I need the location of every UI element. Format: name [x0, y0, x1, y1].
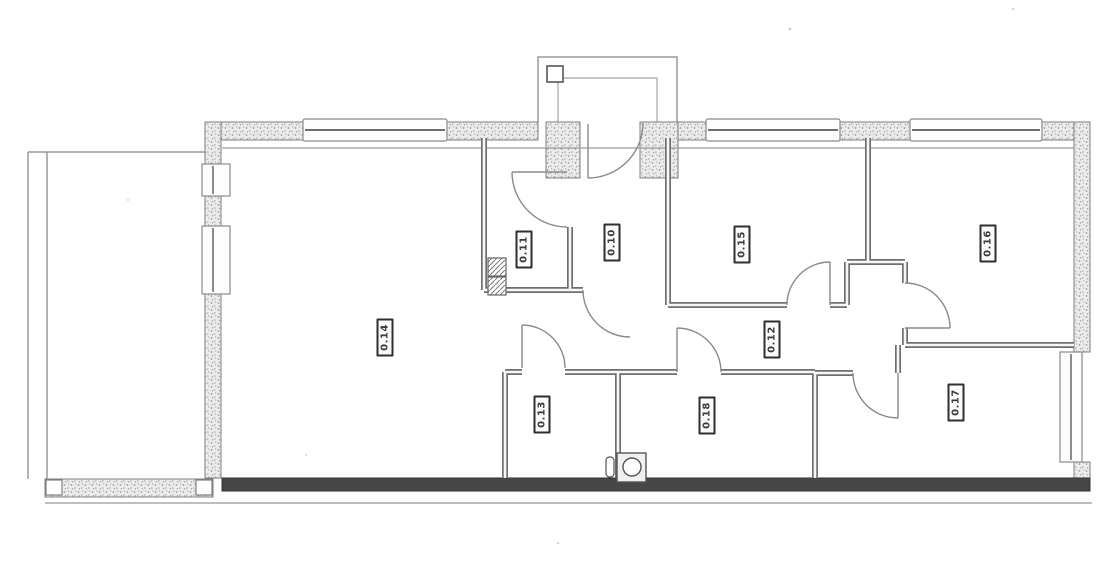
- floorplan-page: 0.14 0.11 0.10 0.15 0.16 0.12 0.13 0.18 …: [0, 0, 1106, 578]
- room-label-0-13: 0.13: [534, 396, 551, 434]
- floorplan-drawing: [0, 0, 1106, 578]
- terrace-post-left: [46, 480, 62, 495]
- room-label-0-16: 0.16: [980, 225, 997, 263]
- window-top-1: [303, 119, 447, 141]
- door-room-016: [905, 283, 950, 328]
- porch-column: [547, 66, 563, 82]
- porch-canopy-line: [558, 78, 657, 122]
- room-label-0-18: 0.18: [699, 397, 716, 435]
- terrace-edge-wall: [45, 479, 213, 497]
- wall-top-3: [678, 122, 706, 140]
- window-right: [1060, 352, 1082, 462]
- window-left-large: [202, 226, 230, 294]
- vestibule-jamb-left: [546, 122, 580, 178]
- door-room-013: [522, 325, 565, 368]
- vestibule-jamb-right: [640, 122, 678, 178]
- wall-top-2: [447, 122, 538, 140]
- door-room-018: [677, 328, 721, 372]
- wall-left-2: [205, 196, 221, 226]
- door-room-015: [787, 262, 830, 305]
- window-left-small: [202, 164, 230, 196]
- window-top-2: [706, 119, 840, 141]
- room-label-0-17: 0.17: [948, 384, 965, 422]
- room-label-0-12: 0.12: [764, 321, 781, 359]
- wall-bottom-dark: [222, 478, 1090, 491]
- door-room-011: [512, 172, 567, 227]
- interior-walls: [484, 138, 1074, 478]
- window-top-3: [910, 119, 1042, 141]
- door-entrance: [588, 123, 643, 178]
- terrace-outline: [28, 152, 205, 479]
- door-room-017: [853, 373, 898, 418]
- wall-right-1: [1074, 122, 1090, 352]
- entrance-porch: [538, 57, 677, 122]
- door-hall-passage: [583, 290, 630, 337]
- room-label-0-15: 0.15: [734, 226, 751, 264]
- room-label-0-11: 0.11: [516, 231, 533, 269]
- terrace-post-right: [196, 480, 212, 495]
- hatched-shaft-icon: [488, 258, 506, 295]
- wall-left-3: [205, 294, 221, 478]
- room-label-0-10: 0.10: [604, 224, 621, 262]
- room-label-0-14: 0.14: [377, 319, 394, 357]
- wall-left-1: [205, 122, 221, 164]
- wall-top-4: [840, 122, 910, 140]
- interior-wall-outline: [484, 138, 1074, 478]
- exterior-walls: [205, 122, 1090, 491]
- terrace: [28, 152, 213, 497]
